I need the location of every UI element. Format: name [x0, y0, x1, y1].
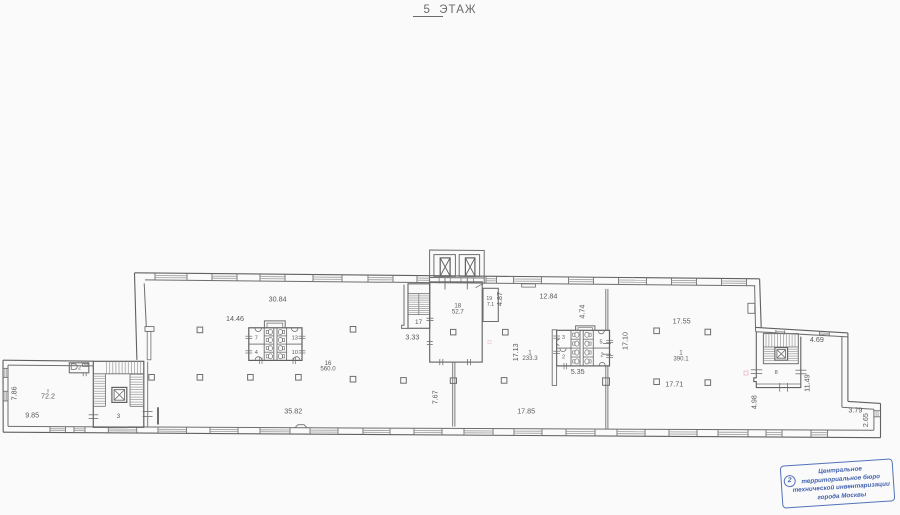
svg-text:17.71: 17.71	[665, 380, 683, 389]
svg-text:7.86: 7.86	[10, 386, 19, 400]
svg-text:11.49: 11.49	[802, 374, 811, 391]
svg-text:7.1: 7.1	[487, 302, 494, 308]
svg-text:560.0: 560.0	[320, 366, 336, 373]
svg-text:7.67: 7.67	[430, 390, 439, 404]
svg-text:3.79: 3.79	[848, 405, 862, 414]
svg-text:14.46: 14.46	[226, 314, 244, 323]
svg-text:4.98: 4.98	[750, 395, 759, 409]
svg-text:17: 17	[415, 319, 423, 326]
svg-text:2.65: 2.65	[861, 413, 870, 427]
svg-text:3.33: 3.33	[405, 332, 419, 341]
svg-text:8: 8	[775, 370, 778, 376]
svg-text:3: 3	[562, 335, 565, 341]
svg-text:4.87: 4.87	[495, 292, 504, 306]
svg-text:72.2: 72.2	[41, 392, 55, 401]
svg-text:5.35: 5.35	[571, 367, 585, 376]
svg-text:30.84: 30.84	[269, 294, 287, 303]
svg-text:4: 4	[255, 350, 258, 356]
svg-text:13: 13	[292, 336, 298, 342]
svg-text:17.55: 17.55	[673, 317, 691, 326]
svg-text:52.7: 52.7	[452, 309, 464, 316]
svg-text:35.82: 35.82	[284, 407, 302, 416]
svg-text:5: 5	[599, 340, 602, 346]
svg-text:2: 2	[600, 353, 603, 359]
svg-text:17.13: 17.13	[511, 343, 520, 361]
svg-text:17.10: 17.10	[621, 332, 630, 350]
svg-text:12.84: 12.84	[539, 292, 557, 301]
svg-text:390.1: 390.1	[673, 355, 689, 362]
svg-text:233.3: 233.3	[522, 355, 538, 362]
svg-text:9.85: 9.85	[25, 411, 39, 420]
svg-text:3: 3	[117, 413, 121, 420]
svg-text:10: 10	[292, 350, 298, 356]
svg-text:4.74: 4.74	[578, 305, 587, 319]
svg-text:4.69: 4.69	[810, 335, 824, 344]
svg-text:2: 2	[78, 365, 81, 371]
svg-text:2: 2	[562, 355, 565, 361]
svg-text:17.85: 17.85	[517, 407, 535, 416]
svg-text:7: 7	[255, 336, 258, 342]
